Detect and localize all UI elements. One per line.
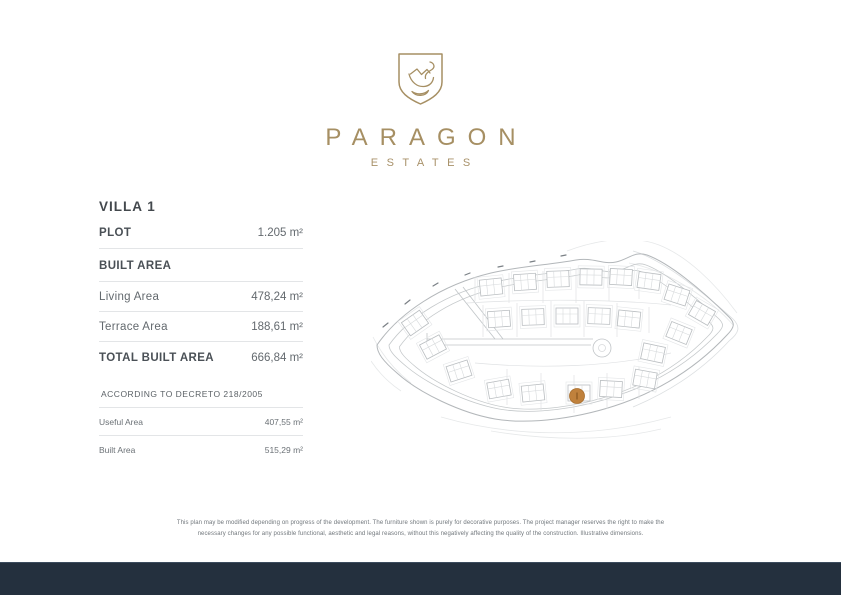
plot-row: PLOT 1.205 m² [99,227,303,249]
villa-footprints [398,265,719,405]
terrace-area-label: Terrace Area [99,321,168,333]
living-area-row: Living Area 478,24 m² [99,282,303,312]
living-area-value: 478,24 m² [251,291,303,303]
plot-label: PLOT [99,227,131,239]
site-plan-map [371,241,749,439]
plot-value: 1.205 m² [258,227,303,239]
built-area-label: Built Area [99,445,135,455]
terrace-area-row: Terrace Area 188,61 m² [99,312,303,342]
brand-name: PARAGON [0,124,841,152]
built-area-heading: BUILT AREA [99,260,171,272]
useful-area-value: 407,55 m² [265,417,303,427]
built-area-heading-row: BUILT AREA [99,249,303,282]
brochure-page: PARAGON ESTATES VILLA 1 PLOT 1.205 m² BU… [0,0,841,595]
internal-roads [427,287,611,357]
brand-tagline: ESTATES [0,157,841,169]
decreto-heading: ACCORDING TO DECRETO 218/2005 [99,389,303,408]
disclaimer-text: This plan may be modified depending on p… [170,518,672,540]
useful-area-label: Useful Area [99,417,143,427]
decreto-table: ACCORDING TO DECRETO 218/2005 Useful Are… [99,389,303,463]
total-built-area-value: 666,84 m² [251,352,303,364]
total-built-area-row: TOTAL BUILT AREA 666,84 m² [99,342,303,364]
villa-title: VILLA 1 [99,199,303,214]
built-area-row: Built Area 515,29 m² [99,436,303,463]
living-area-label: Living Area [99,291,159,303]
useful-area-row: Useful Area 407,55 m² [99,408,303,436]
villa-data-panel: VILLA 1 PLOT 1.205 m² BUILT AREA Living … [99,199,303,463]
built-area-value: 515,29 m² [265,445,303,455]
swan-shield-icon [397,52,444,106]
terrace-area-value: 188,61 m² [251,321,303,333]
villa-1-location-marker [570,389,585,404]
footer-bar [0,562,841,595]
total-built-area-label: TOTAL BUILT AREA [99,352,214,364]
